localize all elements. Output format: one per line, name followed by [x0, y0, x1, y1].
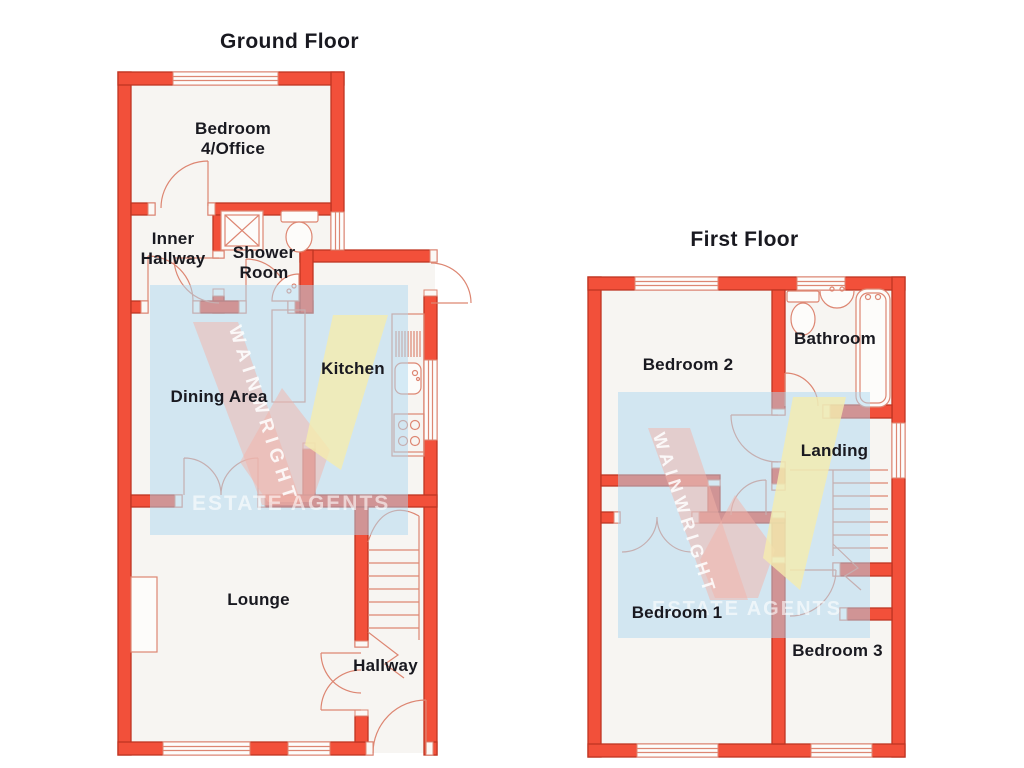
room-label-bathroom: Bathroom	[780, 329, 890, 349]
gf-watermark-tagline: ESTATE AGENTS	[192, 492, 390, 516]
ground-floor-title: Ground Floor	[197, 30, 382, 55]
lounge-chimney-breast	[131, 577, 157, 652]
room-label-kitchen: Kitchen	[303, 359, 403, 379]
room-label-dining-area: Dining Area	[169, 387, 269, 407]
room-label-bedroom3: Bedroom 3	[770, 641, 905, 661]
room-label-inner-hallway: Inner Hallway	[124, 229, 222, 269]
room-label-lounge: Lounge	[206, 590, 311, 610]
room-label-shower-room: Shower Room	[209, 243, 319, 283]
room-label-bedroom2: Bedroom 2	[623, 355, 753, 375]
room-label-landing: Landing	[782, 441, 887, 461]
room-label-bedroom1: Bedroom 1	[612, 603, 742, 623]
room-label-bedroom4-office: Bedroom 4/Office	[173, 119, 293, 159]
floorplan-page: { "floors": [ { "title": "Ground Floor",…	[0, 0, 1024, 768]
first-floor-title: First Floor	[652, 228, 837, 253]
room-label-hallway: Hallway	[333, 656, 438, 676]
